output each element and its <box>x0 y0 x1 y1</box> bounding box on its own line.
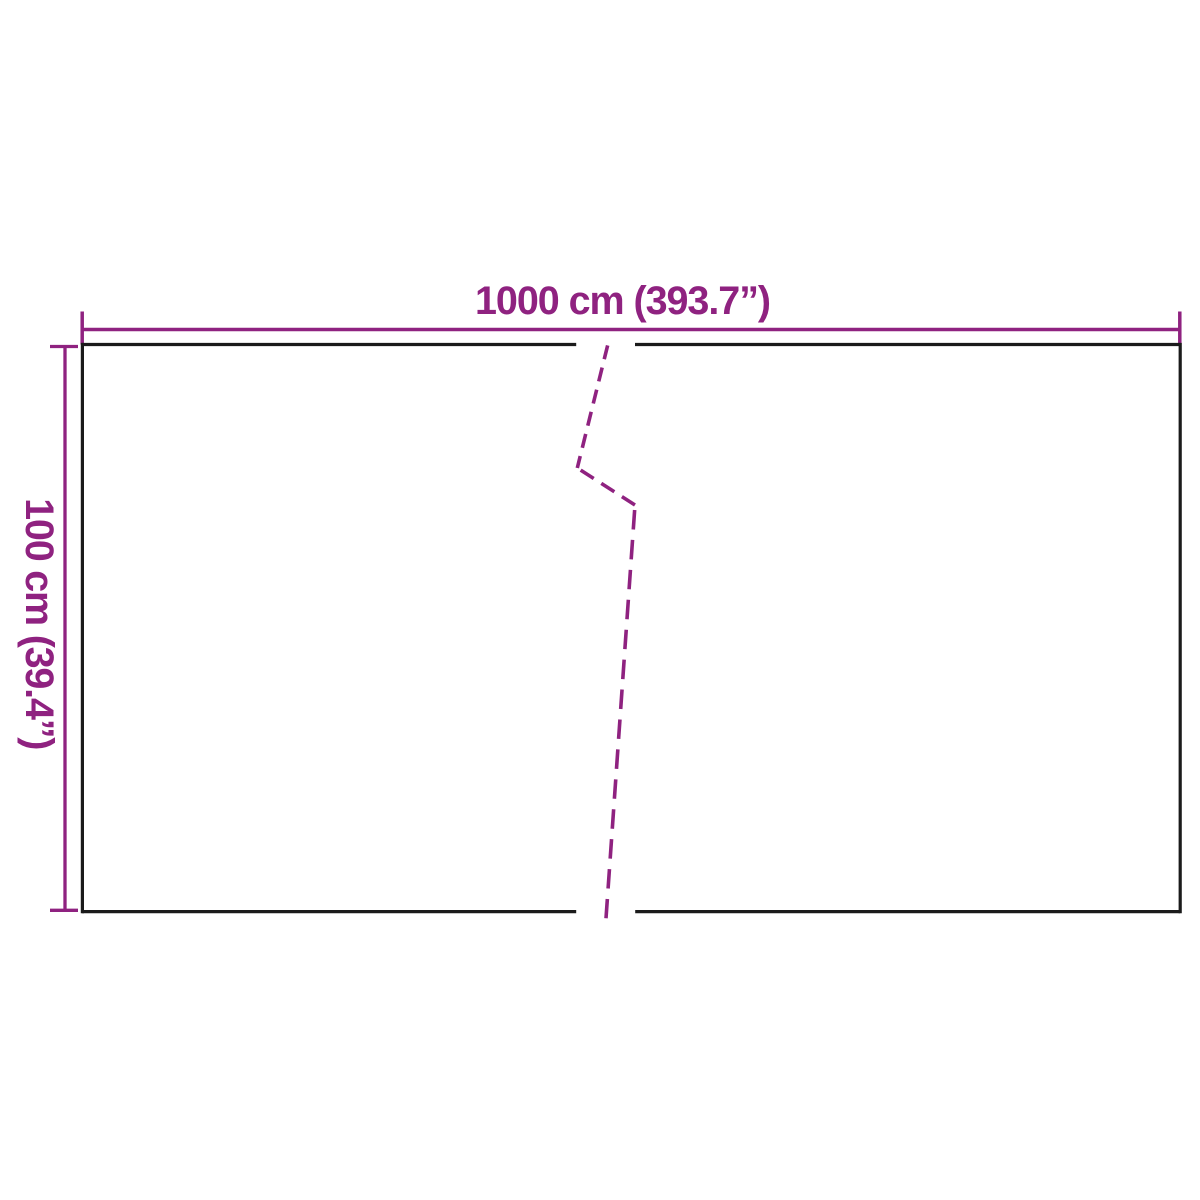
svg-text:100 cm (39.4”): 100 cm (39.4”) <box>17 498 61 749</box>
svg-text:1000 cm (393.7”): 1000 cm (393.7”) <box>475 279 770 323</box>
